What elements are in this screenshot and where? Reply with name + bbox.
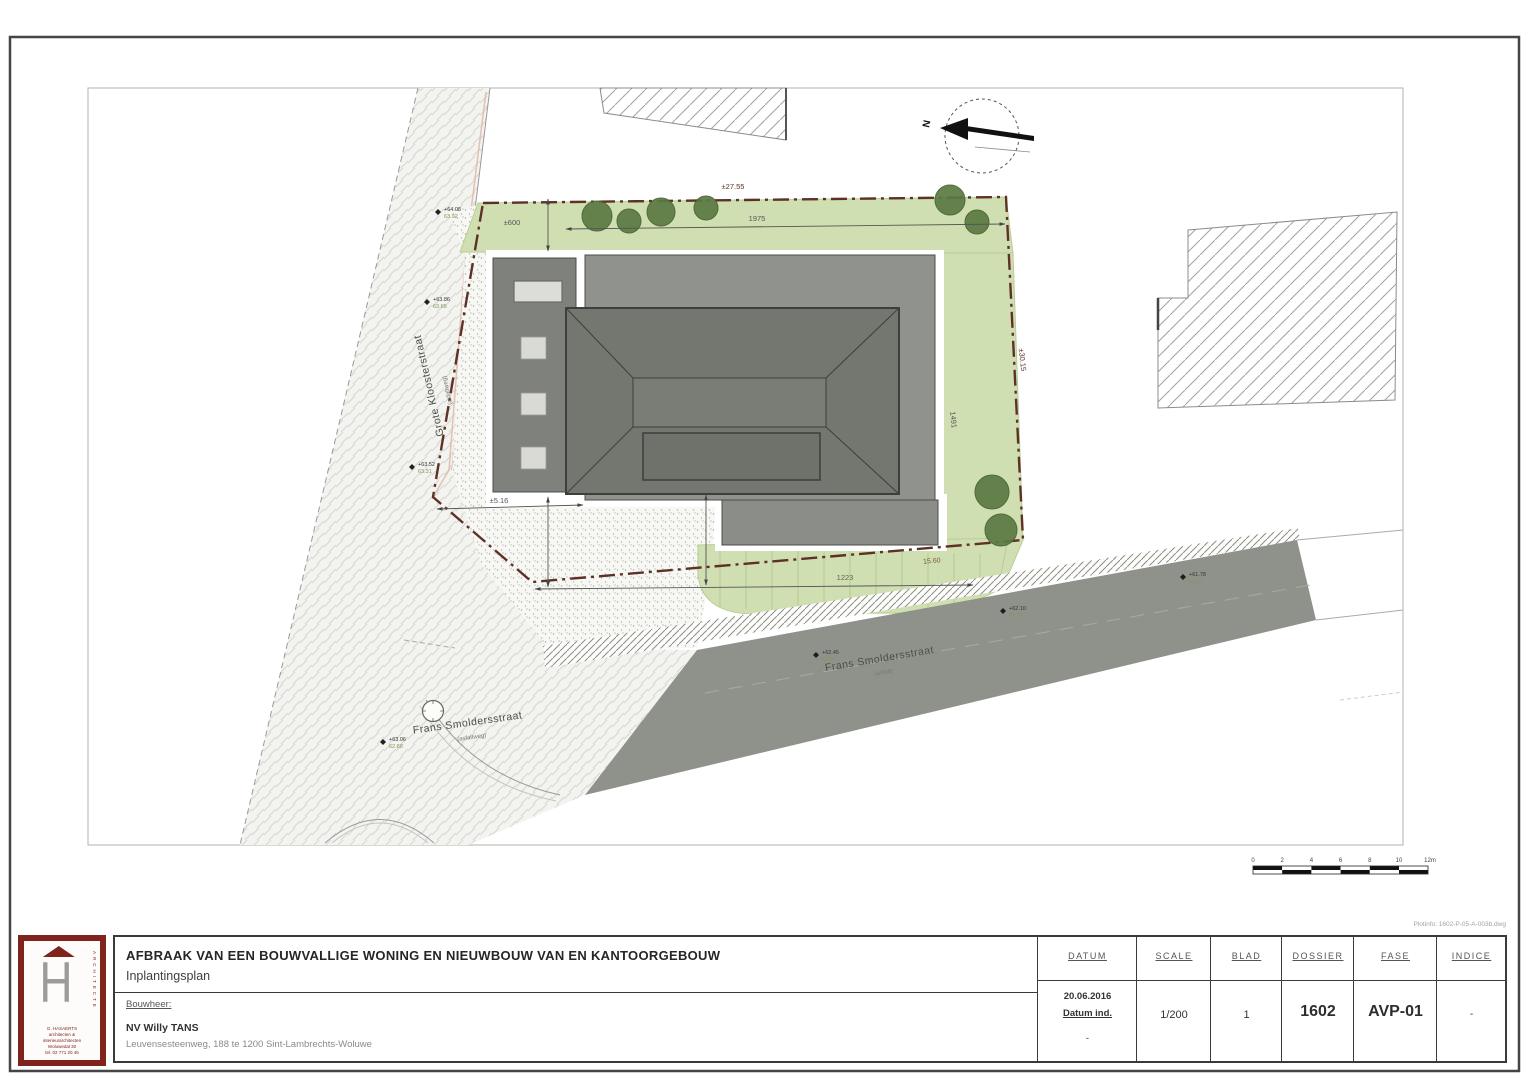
- dim-label-boundary-top: ±27.55: [722, 182, 745, 191]
- tree: [985, 514, 1017, 546]
- plot-reference: Plotinfo: 1602-P-05-A-003b.dwg: [1290, 921, 1506, 928]
- neighbor-building-right: [1158, 212, 1397, 408]
- skylight-4: [521, 447, 546, 469]
- client-address: Leuvensesteenweg, 188 te 1200 Sint-Lambr…: [126, 1039, 372, 1050]
- datum-ind-value: -: [1038, 1033, 1137, 1044]
- logo-letter: H: [30, 953, 82, 1011]
- column-scale: SCALE 1/200: [1136, 937, 1211, 1061]
- column-header: DOSSIER: [1282, 951, 1354, 961]
- svg-text:63.31: 63.31: [418, 469, 432, 475]
- column-header: FASE: [1354, 951, 1437, 961]
- architect-logo-inner: H ARCHITECTE G. HASAERTS architecten & i…: [24, 941, 100, 1060]
- site-plan-drawing: ±27.55 1975 ±600 ±30.15 1491 1223 15.60 …: [0, 0, 1529, 1080]
- svg-text:+63.52: +63.52: [418, 462, 435, 468]
- svg-text:+63.86: +63.86: [433, 297, 450, 303]
- logo-address-lines: G. HASAERTS architecten & interieurarchi…: [24, 1026, 100, 1056]
- svg-text:61.60: 61.60: [1189, 579, 1203, 585]
- roof-terrace: [643, 433, 820, 480]
- dim-label-lawn-width: 1975: [749, 214, 766, 223]
- svg-text:+64.08: +64.08: [444, 207, 461, 213]
- column-indice: INDICE -: [1436, 937, 1506, 1061]
- column-blad: BLAD 1: [1210, 937, 1282, 1061]
- column-datum: DATUM 20.06.2016 Datum ind. -: [1037, 937, 1137, 1061]
- tree: [617, 209, 641, 233]
- svg-text:62.88: 62.88: [389, 744, 403, 750]
- logo-line: tel. 02 771 20 45: [24, 1050, 100, 1056]
- indice-value: -: [1437, 1009, 1506, 1020]
- client-label: Bouwheer:: [126, 999, 171, 1010]
- project-title: AFBRAAK VAN EEN BOUWVALLIGE WONING EN NI…: [126, 948, 720, 963]
- hip-roof-flat-top: [633, 378, 826, 427]
- svg-text:+63.06: +63.06: [389, 737, 406, 743]
- tree: [647, 198, 675, 226]
- tree: [965, 210, 989, 234]
- client-name: NV Willy TANS: [126, 1022, 199, 1034]
- architect-logo: H ARCHITECTE G. HASAERTS architecten & i…: [18, 935, 106, 1066]
- tree: [694, 196, 718, 220]
- svg-text:+61.78: +61.78: [1189, 572, 1206, 578]
- skylight-2: [521, 337, 546, 359]
- logo-side-text: ARCHITECTE: [92, 951, 97, 1010]
- datum-value: 20.06.2016: [1038, 991, 1137, 1002]
- column-header: SCALE: [1137, 951, 1211, 961]
- svg-text:61.95: 61.95: [1009, 613, 1023, 619]
- svg-text:62.31: 62.31: [822, 657, 836, 663]
- column-dossier: DOSSIER 1602: [1281, 937, 1354, 1061]
- tree: [975, 475, 1009, 509]
- title-divider: [115, 992, 1037, 993]
- column-header: INDICE: [1437, 951, 1506, 961]
- skylight-3: [521, 393, 546, 415]
- skylight-1: [514, 281, 562, 302]
- manhole: [423, 701, 444, 722]
- dossier-value: 1602: [1282, 1003, 1354, 1021]
- hip-roof: [566, 308, 899, 494]
- svg-text:+62.45: +62.45: [822, 650, 839, 656]
- dim-label-setback-left: ±5.16: [490, 496, 509, 505]
- title-block: AFBRAAK VAN EEN BOUWVALLIGE WONING EN NI…: [113, 935, 1507, 1063]
- drawing-sheet: ±27.55 1975 ±600 ±30.15 1491 1223 15.60 …: [0, 0, 1529, 1080]
- scale-bar-label: 10: [1396, 858, 1403, 864]
- svg-text:63.65: 63.65: [433, 304, 447, 310]
- column-header: DATUM: [1038, 951, 1137, 961]
- scale-value: 1/200: [1137, 1009, 1211, 1021]
- building-annex: [722, 500, 938, 545]
- tree: [935, 185, 965, 215]
- dim-label-right-strip: 1491: [948, 411, 959, 429]
- svg-text:+62.10: +62.10: [1009, 606, 1026, 612]
- datum-ind-label: Datum ind.: [1038, 1008, 1137, 1019]
- column-header: BLAD: [1211, 951, 1282, 961]
- fase-value: AVP-01: [1354, 1003, 1437, 1021]
- dim-label-bottom-width: 1223: [837, 573, 854, 582]
- blad-value: 1: [1211, 1009, 1282, 1021]
- scale-bar-label: 12m: [1424, 858, 1436, 864]
- column-fase: FASE AVP-01: [1353, 937, 1437, 1061]
- dim-label-setback-top: ±600: [504, 218, 521, 227]
- svg-text:63.92: 63.92: [444, 214, 458, 220]
- tree: [582, 201, 612, 231]
- drawing-name: Inplantingsplan: [126, 969, 210, 983]
